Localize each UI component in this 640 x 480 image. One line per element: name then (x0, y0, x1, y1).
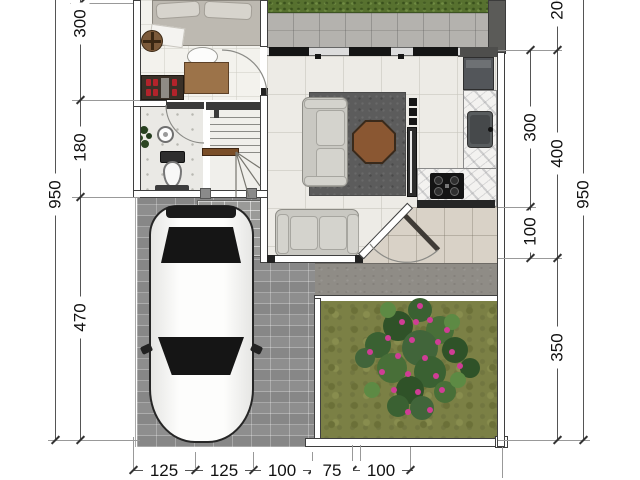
door-handle (398, 54, 404, 59)
stair-handrail (202, 148, 239, 156)
dim-label: 950 (46, 174, 65, 216)
bathroom-plant (140, 126, 148, 134)
wall-post (246, 188, 257, 199)
sink-faucet (488, 127, 493, 132)
bathroom-door-leaf (166, 102, 204, 109)
shoes (146, 89, 151, 96)
stove-burner (434, 176, 443, 185)
tv-shelf (409, 98, 417, 106)
dim-label: 180 (71, 127, 90, 169)
car-windshield (158, 337, 244, 375)
tv-shelf (409, 108, 417, 116)
stairs-right-wall (260, 95, 268, 263)
dim-line-right-total (583, 0, 584, 440)
tv-screen-line (410, 131, 412, 193)
dim-line-left-inner (80, 0, 81, 440)
sofa-second (275, 209, 359, 257)
dim-extension (72, 197, 140, 198)
sofa-cushion (319, 216, 347, 250)
floor-plan-canvas: 950 300 180 470 300 100 200 400 350 950 … (0, 0, 640, 480)
stair-newel (214, 110, 219, 118)
stove-center (445, 184, 449, 188)
dim-extension (498, 440, 590, 441)
dim-label: 200 (548, 0, 567, 27)
dim-line-left-total (55, 0, 56, 440)
washbasin-drain (163, 132, 168, 137)
garden-left-edge (314, 298, 321, 439)
wall-cap (267, 255, 275, 263)
dim-label: 125 (203, 461, 245, 480)
shoe-rack (141, 75, 184, 100)
shoes (153, 89, 158, 96)
dim-extension (502, 447, 503, 478)
dim-extension (133, 437, 134, 470)
dim-label: 400 (548, 133, 567, 175)
dim-extension (253, 452, 254, 468)
door-handle (315, 54, 321, 59)
wall-post (200, 188, 211, 199)
dim-extension (195, 452, 196, 468)
shoes (172, 89, 177, 96)
stove-burner (434, 187, 443, 196)
tv-shelf (409, 118, 417, 125)
dim-tick (406, 465, 415, 474)
car-rear-strip (166, 206, 236, 218)
sofa-cushion (316, 110, 345, 146)
sofa-armrest (304, 99, 347, 109)
dim-label: 950 (574, 174, 593, 216)
bed-pillow (204, 1, 253, 20)
glass-frame (413, 47, 458, 56)
dim-label: 125 (143, 461, 185, 480)
tv-console (407, 127, 417, 197)
door-hinge-post (261, 88, 268, 95)
side-table-cross (143, 40, 161, 43)
coffee-table-top (354, 122, 394, 162)
dim-label: 300 (71, 3, 90, 45)
glass-frame (269, 47, 309, 56)
dim-label: 75 (311, 461, 353, 480)
living-bottom-wall (267, 255, 363, 263)
kitchen-top-wall (458, 47, 498, 57)
terrace-side-wall (488, 0, 506, 54)
bedroom-right-wall (260, 0, 268, 47)
dim-label: 470 (71, 297, 90, 339)
desk (184, 62, 229, 94)
sofa-armrest (347, 214, 359, 254)
car-rear-window (161, 227, 241, 263)
sink-basin (470, 115, 490, 144)
dim-extension (48, 440, 140, 441)
dim-label: 100 (521, 211, 540, 253)
exterior-wall-left (133, 0, 141, 198)
sofa-armrest (277, 214, 289, 254)
fridge-top (466, 60, 491, 68)
dim-label: 300 (521, 107, 540, 149)
dim-line-right-mid (557, 0, 558, 440)
dim-label: 100 (360, 461, 402, 480)
rack-shelf (161, 78, 169, 98)
glass-frame (349, 47, 391, 56)
counter-edge-bar (417, 200, 495, 208)
shoes (153, 79, 158, 86)
bed-pillow (155, 0, 200, 19)
shoes (172, 79, 177, 86)
bedroom-bathroom-wall (133, 100, 167, 107)
garden-bottom-wall (305, 438, 505, 447)
exterior-wall-right (497, 52, 505, 447)
garden-grass (320, 301, 497, 438)
sofa-cushion (290, 216, 318, 250)
stairs-top-rail (206, 102, 264, 110)
shoes (146, 79, 151, 86)
dim-label: 100 (261, 461, 303, 480)
dim-label: 350 (548, 327, 567, 369)
sofa-armrest (304, 176, 347, 186)
sofa-two-seat (302, 97, 348, 187)
dim-extension (72, 100, 140, 101)
stove-burner (450, 187, 459, 196)
terrace-tiles (267, 13, 497, 47)
hedge-strip (267, 0, 490, 13)
gas-stove (430, 173, 464, 199)
stove-burner (450, 176, 459, 185)
carport-boundary-line (135, 198, 136, 447)
